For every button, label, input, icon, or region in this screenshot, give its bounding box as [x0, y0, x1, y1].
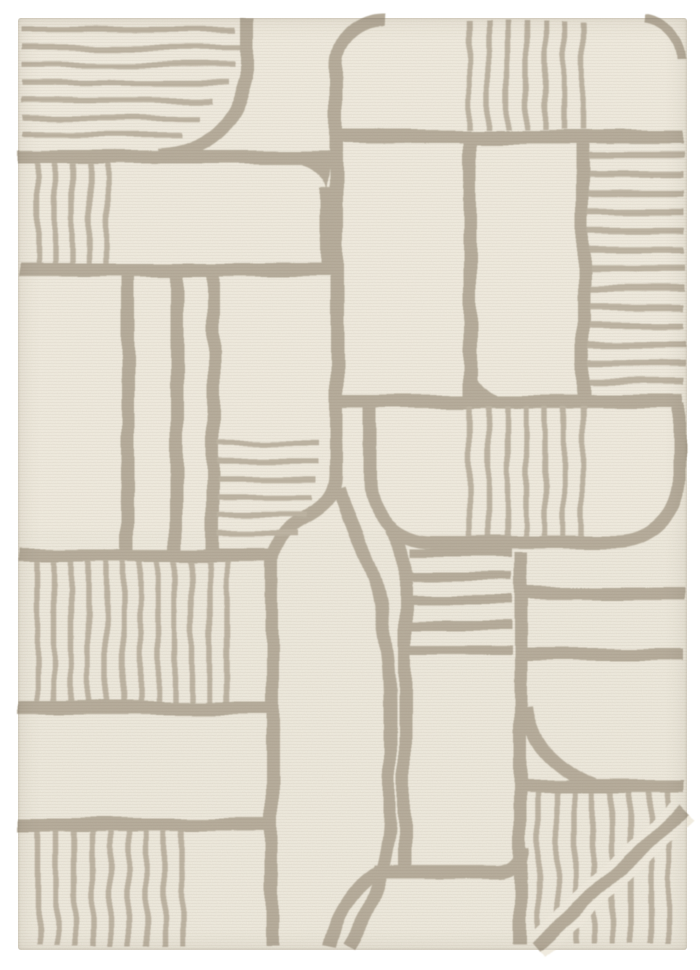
product-photo [0, 0, 700, 970]
pile-grain-overlay [18, 18, 687, 950]
rug [0, 0, 700, 970]
rug-pattern-svg [0, 0, 700, 970]
